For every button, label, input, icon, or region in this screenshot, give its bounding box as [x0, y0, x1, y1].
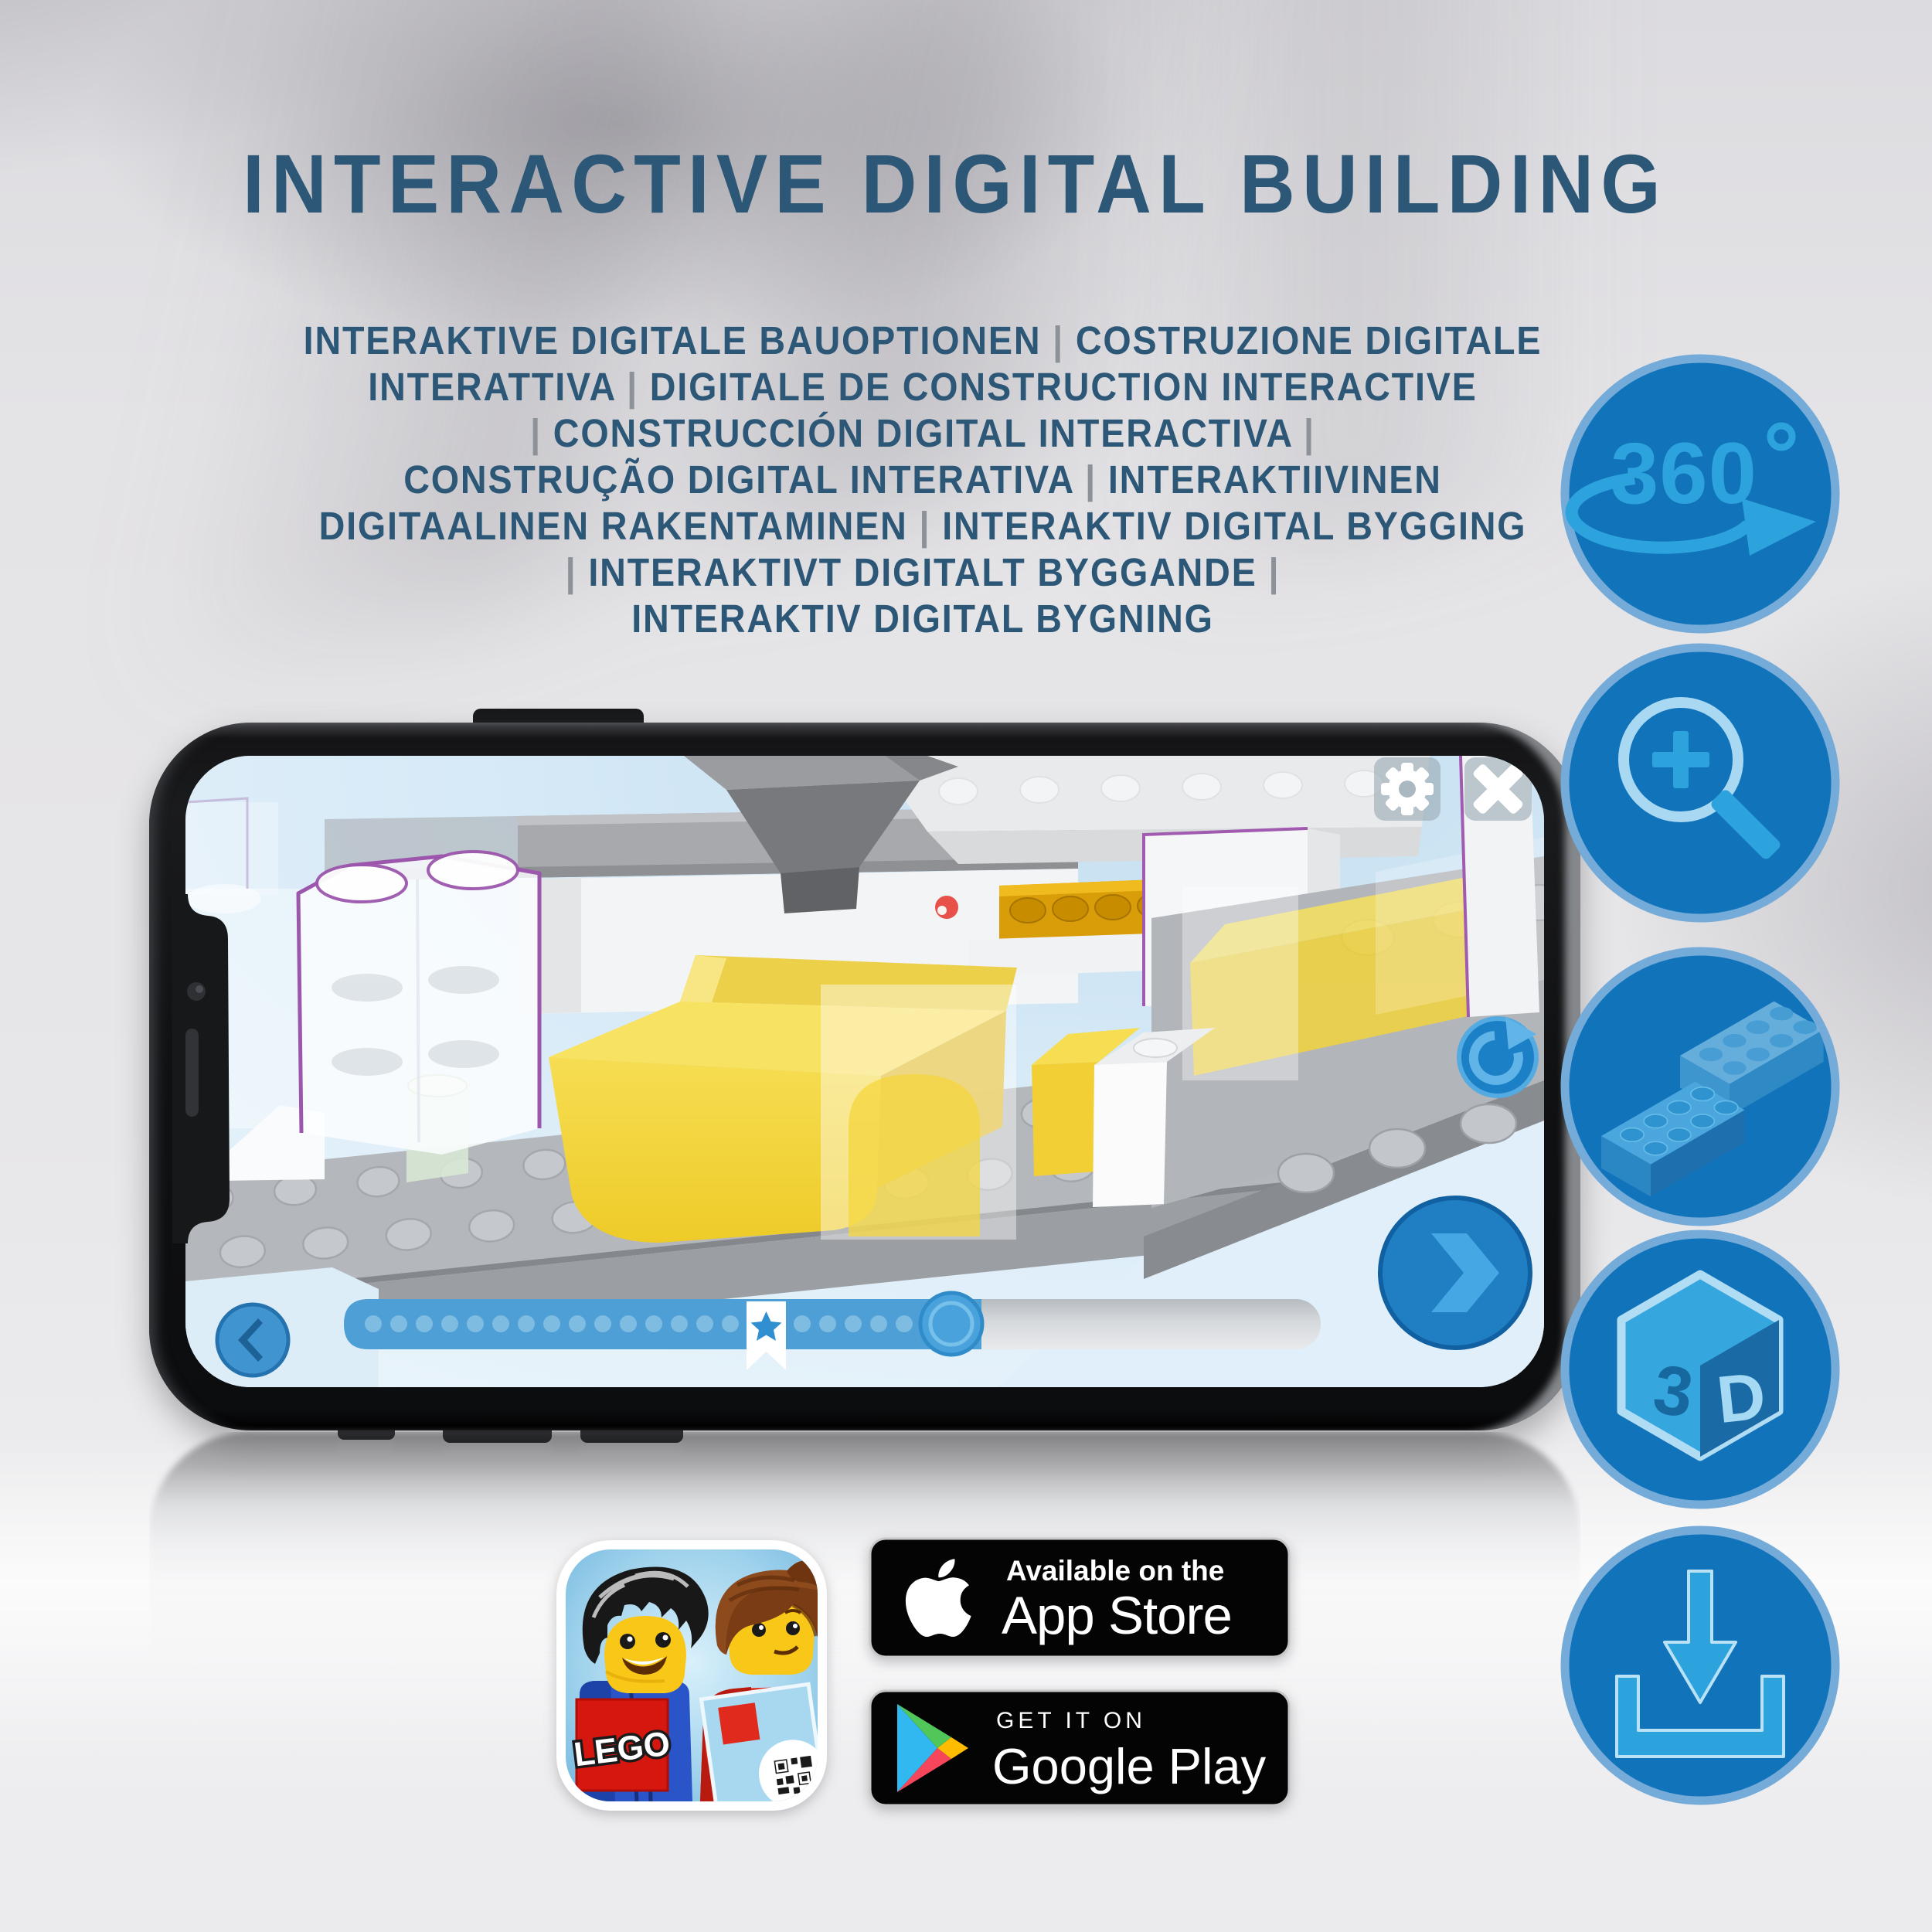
svg-text:Available on the: Available on the — [1006, 1555, 1224, 1587]
svg-text:Google Play: Google Play — [992, 1738, 1267, 1794]
svg-text:D: D — [1713, 1359, 1769, 1437]
svg-text:App Store: App Store — [1002, 1586, 1232, 1645]
svg-text:GET IT ON: GET IT ON — [996, 1708, 1146, 1733]
